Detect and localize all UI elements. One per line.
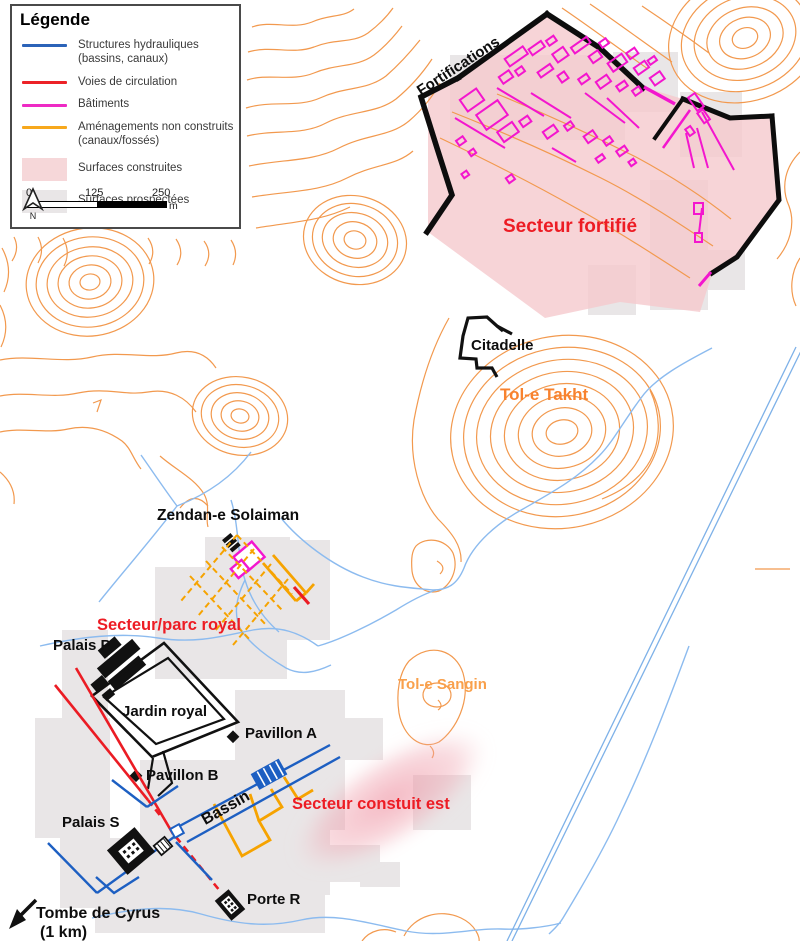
legend-item-built-surfaces: Surfaces construites bbox=[22, 158, 239, 181]
label-palais-p: Palais P bbox=[53, 637, 111, 654]
legend-label: Aménagements non construits bbox=[78, 121, 233, 133]
built-surface-swatch bbox=[22, 158, 67, 181]
canal-double-line bbox=[507, 347, 800, 941]
legend-item-hydraulic: Structures hydrauliques (bassins, canaux… bbox=[22, 39, 239, 67]
legend-label: Voies de circulation bbox=[78, 76, 177, 90]
legend-item-roads: Voies de circulation bbox=[22, 76, 239, 90]
legend-item-buildings: Bâtiments bbox=[22, 98, 239, 112]
label-porte-r: Porte R bbox=[247, 891, 301, 908]
scale-bar: 0 125 250 m N bbox=[22, 187, 222, 221]
label-zendan: Zendan-e Solaiman bbox=[157, 507, 299, 524]
label-tol-e-sangin: Tol-e Sangin bbox=[398, 676, 487, 693]
building-line-swatch bbox=[22, 104, 67, 107]
scale-unit: m bbox=[169, 200, 178, 212]
legend-panel: Légende Structures hydrauliques (bassins… bbox=[10, 4, 241, 229]
scale-tick-250: 250 bbox=[152, 187, 170, 199]
north-arrow-icon: N bbox=[22, 187, 44, 221]
label-secteur-parc-royal: Secteur/parc royal bbox=[97, 616, 241, 634]
label-tombe-distance: (1 km) bbox=[40, 924, 87, 941]
north-label: N bbox=[30, 211, 37, 221]
label-secteur-fortifie: Secteur fortifié bbox=[503, 216, 637, 237]
pasargadae-archaeological-map: Fortifications Secteur fortifié Citadell… bbox=[0, 0, 800, 941]
legend-sublabel: (canaux/fossés) bbox=[78, 135, 159, 147]
legend-label: Surfaces construites bbox=[78, 162, 182, 176]
legend-label: Structures hydrauliques bbox=[78, 39, 199, 51]
legend-label: Bâtiments bbox=[78, 98, 129, 112]
unbuilt-line-swatch bbox=[22, 126, 67, 129]
tombe-arrow-icon bbox=[9, 900, 36, 929]
label-pavillon-b: Pavillon B bbox=[146, 767, 219, 784]
label-jardin-royal: Jardin royal bbox=[122, 703, 207, 720]
label-palais-s: Palais S bbox=[62, 814, 120, 831]
legend-sublabel: (bassins, canaux) bbox=[78, 53, 168, 65]
scale-bar-graphic bbox=[27, 201, 167, 208]
hydraulic-line-swatch bbox=[22, 44, 67, 47]
label-tombe-de-cyrus: Tombe de Cyrus bbox=[36, 905, 160, 922]
label-citadelle: Citadelle bbox=[471, 337, 534, 354]
scale-tick-125: 125 bbox=[85, 187, 103, 199]
label-secteur-construit-est: Secteur constuit est bbox=[292, 795, 450, 813]
road-line-swatch bbox=[22, 81, 67, 84]
label-pavillon-a: Pavillon A bbox=[245, 725, 317, 742]
legend-title: Légende bbox=[20, 10, 239, 30]
legend-item-unbuilt: Aménagements non construits (canaux/foss… bbox=[22, 121, 239, 149]
label-tol-e-takht: Tol-e Takht bbox=[500, 385, 588, 404]
